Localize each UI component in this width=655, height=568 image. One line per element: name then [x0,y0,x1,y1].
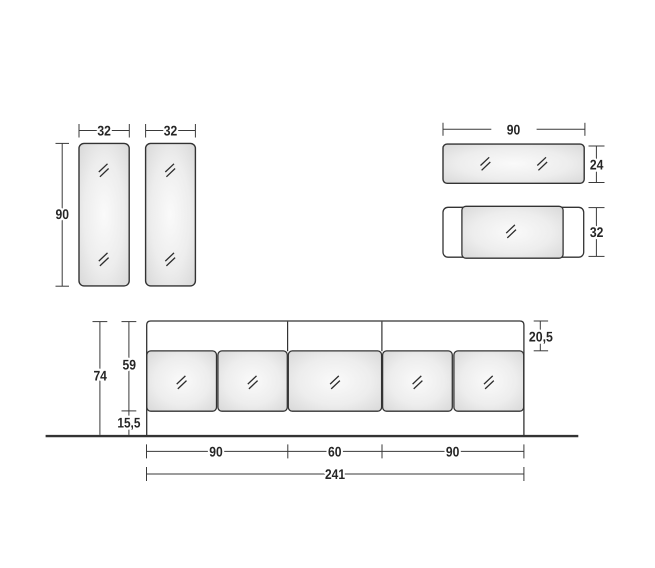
svg-text:32: 32 [164,123,178,139]
svg-text:90: 90 [446,444,460,460]
svg-text:20,5: 20,5 [529,329,553,345]
svg-text:32: 32 [97,123,111,139]
svg-text:90: 90 [209,444,223,460]
svg-text:60: 60 [328,444,342,460]
svg-text:90: 90 [507,121,521,137]
svg-text:32: 32 [590,224,604,240]
svg-text:74: 74 [93,368,107,384]
svg-text:15,5: 15,5 [117,415,140,431]
svg-text:90: 90 [56,206,70,222]
svg-text:24: 24 [590,157,604,173]
svg-text:59: 59 [123,356,137,372]
svg-text:241: 241 [325,466,345,482]
